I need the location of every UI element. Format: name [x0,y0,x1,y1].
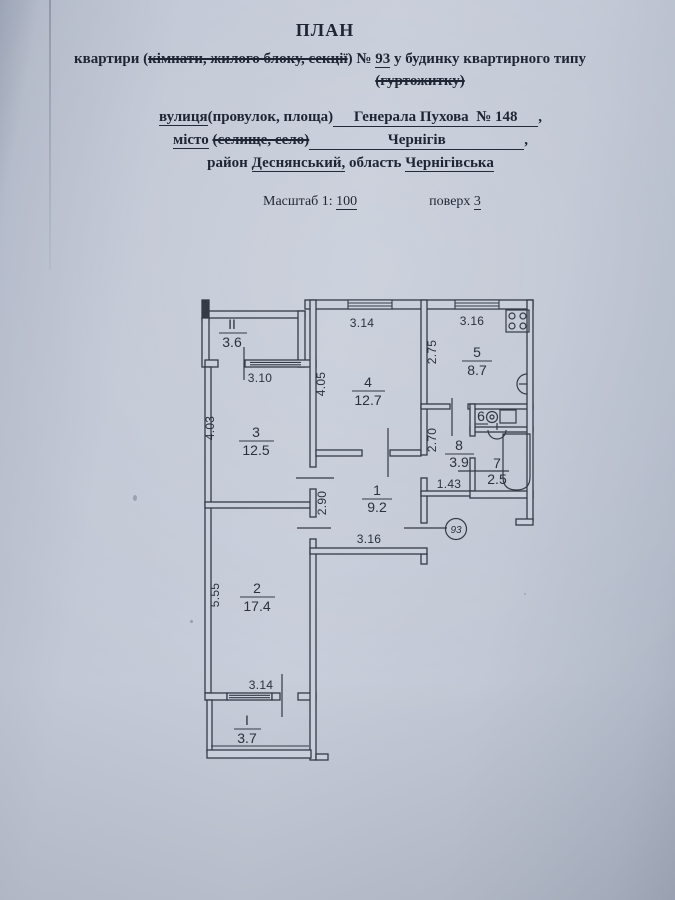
floor-plan: 93 II 3.6 4 12.7 5 8.7 3 12.5 [202,300,533,760]
bathtub-icon [503,434,530,490]
svg-text:3: 3 [252,424,260,440]
room-label-4: 4 12.7 [352,374,385,408]
apartment-badge-text: 93 [450,525,462,536]
scanned-floor-plan-page: { "document": { "title": "ПЛАН", "subjec… [0,0,675,900]
apartment-number-badge: 93 [446,519,467,540]
svg-text:II: II [228,316,236,332]
svg-text:2: 2 [253,580,261,596]
dim-room2-left: 5.55 [208,583,222,608]
svg-text:17.4: 17.4 [243,598,270,614]
svg-text:4: 4 [364,374,372,390]
dim-hall-left: 2.90 [315,491,329,516]
dim-room2-bottom: 3.14 [249,678,274,692]
kitchen-sink-icon [517,374,527,394]
svg-text:8: 8 [455,437,463,453]
svg-text:8.7: 8.7 [467,362,487,378]
dim-corridor8-left: 2.70 [425,428,439,453]
stove-icon [506,310,529,332]
dim-balcony2-width: 3.10 [248,371,273,385]
room-label-2: 2 17.4 [240,580,275,614]
dim-room4-top: 3.14 [350,316,375,330]
dim-corridor8-width: 1.43 [437,477,462,491]
svg-text:7: 7 [493,455,501,471]
svg-text:6: 6 [477,408,485,424]
room-label-7: 7 2.5 [487,455,507,487]
svg-text:I: I [245,712,249,728]
svg-text:1: 1 [373,482,381,498]
room-label-5: 5 8.7 [462,344,492,378]
dim-room4-left: 4.05 [314,372,328,397]
svg-text:3.6: 3.6 [222,334,242,350]
dim-kitchen-left: 2.75 [425,340,439,365]
room-label-balcony2: II 3.6 [219,316,247,350]
dim-kitchen-top: 3.16 [460,314,485,328]
svg-text:12.7: 12.7 [354,392,381,408]
room-label-1: 1 9.2 [362,482,392,515]
room-label-balcony1: I 3.7 [234,712,261,746]
svg-text:3.9: 3.9 [449,454,469,470]
svg-text:3.7: 3.7 [237,730,257,746]
floor-plan-svg: 93 II 3.6 4 12.7 5 8.7 3 12.5 [0,0,675,900]
svg-text:9.2: 9.2 [367,499,387,515]
toilet-icon [487,410,517,423]
svg-text:12.5: 12.5 [242,442,269,458]
room-label-3: 3 12.5 [239,424,274,458]
svg-text:2.5: 2.5 [487,471,507,487]
dim-hall-bottom: 3.16 [357,532,382,546]
dim-room3-left: 4.03 [203,416,217,441]
svg-text:5: 5 [473,344,481,360]
